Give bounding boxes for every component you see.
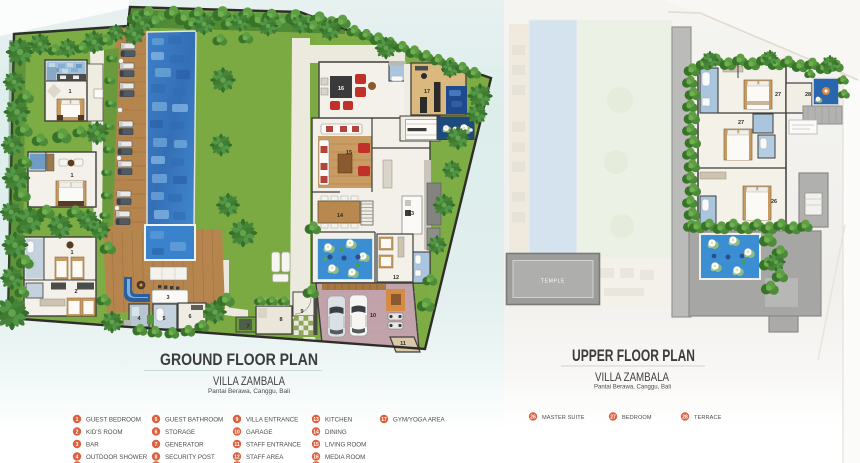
svg-text:8: 8 xyxy=(279,317,282,323)
svg-text:2: 2 xyxy=(76,430,79,436)
svg-text:MEDIA ROOM: MEDIA ROOM xyxy=(325,454,365,461)
svg-text:1: 1 xyxy=(76,417,79,423)
svg-text:12: 12 xyxy=(393,275,399,281)
svg-text:8: 8 xyxy=(155,455,158,461)
svg-text:VILLA ZAMBALA: VILLA ZAMBALA xyxy=(595,372,669,384)
svg-text:2: 2 xyxy=(74,289,77,295)
svg-text:11: 11 xyxy=(400,341,406,347)
svg-text:STAFF ENTRANCE: STAFF ENTRANCE xyxy=(246,442,301,449)
svg-text:MASTER SUITE: MASTER SUITE xyxy=(542,415,585,421)
svg-text:9: 9 xyxy=(236,417,239,423)
svg-text:KID'S ROOM: KID'S ROOM xyxy=(86,429,123,436)
svg-text:28: 28 xyxy=(682,415,688,421)
svg-text:7: 7 xyxy=(155,442,158,448)
svg-text:15: 15 xyxy=(313,442,319,448)
svg-text:6: 6 xyxy=(188,314,191,320)
svg-text:3: 3 xyxy=(166,295,169,301)
svg-text:1: 1 xyxy=(68,89,71,95)
svg-text:GUEST BEDROOM: GUEST BEDROOM xyxy=(86,417,141,424)
svg-text:5: 5 xyxy=(155,417,158,423)
svg-text:LIVING ROOM: LIVING ROOM xyxy=(325,442,366,449)
svg-text:1: 1 xyxy=(70,250,73,256)
svg-text:26: 26 xyxy=(771,199,777,205)
svg-text:SECURITY POST: SECURITY POST xyxy=(165,454,215,461)
svg-text:1: 1 xyxy=(70,173,73,179)
svg-text:26: 26 xyxy=(530,415,536,421)
svg-text:9: 9 xyxy=(300,309,303,315)
svg-text:14: 14 xyxy=(337,213,344,219)
svg-text:GYM/YOGA AREA: GYM/YOGA AREA xyxy=(393,417,445,424)
svg-text:3: 3 xyxy=(76,442,79,448)
svg-text:13: 13 xyxy=(408,211,414,217)
svg-text:10: 10 xyxy=(234,430,240,436)
svg-text:11: 11 xyxy=(234,442,240,448)
svg-text:GARAGE: GARAGE xyxy=(246,429,272,436)
svg-text:Pantai Berawa, Canggu, Bali: Pantai Berawa, Canggu, Bali xyxy=(594,384,671,391)
svg-text:DINING: DINING xyxy=(325,429,347,436)
svg-text:27: 27 xyxy=(738,120,744,126)
svg-text:STAFF AREA: STAFF AREA xyxy=(246,454,284,461)
svg-text:VILLA ENTRANCE: VILLA ENTRANCE xyxy=(246,417,298,424)
svg-text:17: 17 xyxy=(424,89,430,95)
svg-text:STORAGE: STORAGE xyxy=(165,429,195,436)
svg-text:4: 4 xyxy=(76,455,79,461)
svg-text:28: 28 xyxy=(805,92,811,98)
svg-text:6: 6 xyxy=(155,430,158,436)
svg-text:16: 16 xyxy=(313,455,319,461)
svg-text:15: 15 xyxy=(346,150,352,156)
svg-text:5: 5 xyxy=(162,316,165,322)
svg-text:GUEST BATHROOM: GUEST BATHROOM xyxy=(165,417,223,424)
svg-text:VILLA ZAMBALA: VILLA ZAMBALA xyxy=(213,376,285,388)
svg-text:GENERATOR: GENERATOR xyxy=(165,442,204,449)
svg-text:GROUND FLOOR PLAN: GROUND FLOOR PLAN xyxy=(160,351,318,369)
svg-text:OUTDOOR SHOWER: OUTDOOR SHOWER xyxy=(86,454,148,461)
svg-text:UPPER FLOOR PLAN: UPPER FLOOR PLAN xyxy=(572,347,695,365)
svg-text:27: 27 xyxy=(775,92,781,98)
svg-text:27: 27 xyxy=(610,415,616,421)
svg-text:12: 12 xyxy=(234,455,240,461)
svg-text:TEMPLE: TEMPLE xyxy=(541,279,565,285)
svg-text:BAR: BAR xyxy=(86,442,99,449)
svg-text:13: 13 xyxy=(313,417,319,423)
svg-text:KITCHEN: KITCHEN xyxy=(325,417,352,424)
svg-text:TERRACE: TERRACE xyxy=(694,415,722,421)
svg-text:BEDROOM: BEDROOM xyxy=(622,415,652,421)
svg-text:16: 16 xyxy=(338,86,344,92)
svg-text:7: 7 xyxy=(246,324,249,330)
svg-text:Pantai Berawa, Canggu, Bali: Pantai Berawa, Canggu, Bali xyxy=(208,388,290,395)
svg-text:10: 10 xyxy=(370,313,376,319)
svg-text:17: 17 xyxy=(381,417,387,423)
svg-text:14: 14 xyxy=(313,430,319,436)
